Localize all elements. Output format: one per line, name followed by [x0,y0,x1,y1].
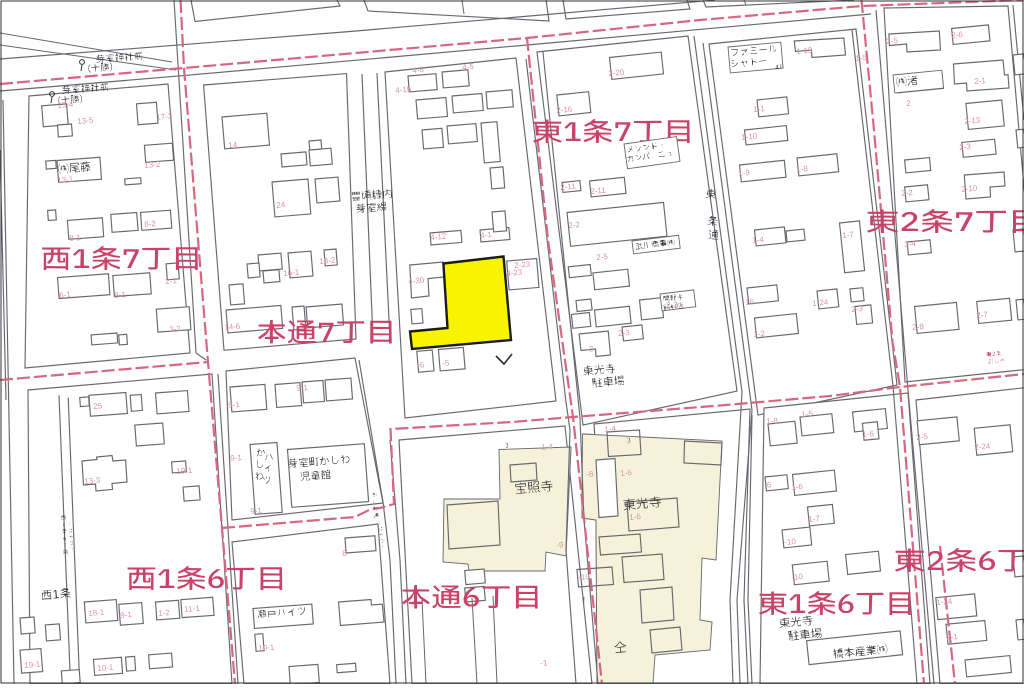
svg-text:-6: -6 [417,360,425,370]
svg-text:1-4: 1-4 [541,442,554,452]
svg-text:8-2: 8-2 [144,219,157,229]
svg-text:1-8: 1-8 [766,416,779,426]
svg-text:4-15: 4-15 [395,85,412,95]
svg-text:13-5: 13-5 [77,116,94,126]
svg-text:-10: -10 [791,572,804,582]
svg-text:16: 16 [745,297,755,307]
svg-text:16-1: 16-1 [283,268,300,278]
svg-text:24: 24 [276,200,286,210]
svg-text:18-1: 18-1 [88,608,105,618]
svg-text:10-1: 10-1 [258,643,275,653]
svg-text:13-1: 13-1 [57,175,74,185]
svg-text:1-2: 1-2 [753,329,766,339]
svg-text:2-3: 2-3 [666,300,679,310]
svg-text:1-7: 1-7 [808,514,821,524]
svg-text:1-10: 1-10 [741,132,758,142]
svg-text:2-2: 2-2 [568,220,581,230]
svg-text:1-8: 1-8 [796,164,809,174]
svg-text:25: 25 [93,401,103,411]
svg-text:1-5: 1-5 [855,53,868,63]
svg-text:1-6: 1-6 [862,429,875,439]
svg-text:2-8: 2-8 [912,322,925,332]
svg-text:1-5: 1-5 [801,409,814,419]
svg-text:2-3: 2-3 [959,142,972,152]
svg-text:2-6: 2-6 [951,30,964,40]
svg-text:2-5: 2-5 [886,36,899,46]
svg-text:3-4: 3-4 [904,239,917,249]
svg-text:1-6: 1-6 [620,468,633,478]
svg-text:4-12: 4-12 [430,232,447,242]
svg-text:13-4: 13-4 [57,100,74,110]
svg-text:8-1: 8-1 [114,290,127,300]
svg-text:19-1: 19-1 [176,466,193,476]
svg-text:4-30: 4-30 [408,276,425,286]
svg-text:2-5: 2-5 [916,432,929,442]
svg-text:18-2: 18-2 [319,256,336,266]
svg-text:2-23: 2-23 [514,260,531,270]
svg-text:1-24: 1-24 [936,597,953,607]
svg-text:-9: -9 [556,540,564,550]
svg-text:3-2: 3-2 [169,324,182,334]
svg-text:9-1: 9-1 [230,453,243,463]
svg-text:2-1: 2-1 [974,76,987,86]
svg-text:11-1: 11-1 [184,604,201,614]
svg-text:1-4: 1-4 [604,424,617,434]
svg-text:2-24: 2-24 [974,442,991,452]
svg-text:1-2: 1-2 [158,608,171,618]
svg-text:-8: -8 [586,469,594,479]
svg-text:2-10: 2-10 [961,184,978,194]
svg-text:-5: -5 [442,358,450,368]
svg-text:2-3: 2-3 [851,304,864,314]
svg-text:2-16: 2-16 [556,105,573,115]
svg-text:1-1: 1-1 [753,104,766,114]
svg-text:4-1: 4-1 [480,230,493,240]
svg-text:2-7: 2-7 [976,310,989,320]
svg-text:4-5: 4-5 [462,62,475,72]
svg-text:2-1: 2-1 [946,632,959,642]
svg-text:2-11: 2-11 [590,186,607,196]
svg-text:9-1: 9-1 [228,400,241,410]
svg-text:2-5: 2-5 [596,252,609,262]
svg-text:17-3: 17-3 [156,112,173,122]
svg-text:2-11: 2-11 [560,182,577,192]
svg-text:-1: -1 [540,658,548,668]
svg-text:1-9: 1-9 [738,168,751,178]
svg-text:13-3: 13-3 [84,476,101,486]
svg-text:2-13: 2-13 [964,116,981,126]
svg-text:4-6: 4-6 [412,65,425,75]
svg-text:1-7: 1-7 [842,230,855,240]
svg-text:9-1: 9-1 [296,383,309,393]
svg-text:2-20: 2-20 [608,68,625,78]
svg-text:1-13: 1-13 [796,46,813,56]
svg-text:1-4: 1-4 [752,235,765,245]
svg-text:-10: -10 [578,572,591,582]
svg-text:9-1: 9-1 [250,506,263,516]
svg-text:9-1: 9-1 [120,610,133,620]
svg-text:1-6: 1-6 [629,512,642,522]
svg-text:-3: -3 [586,344,594,354]
svg-text:10-1: 10-1 [97,663,114,673]
svg-text:14: 14 [228,140,238,150]
svg-text:1-24: 1-24 [812,298,829,308]
svg-text:13-2: 13-2 [144,160,161,170]
svg-text:6-1: 6-1 [59,290,72,300]
svg-text:1-6: 1-6 [791,482,804,492]
svg-text:8-1: 8-1 [69,233,82,243]
svg-text:14-6: 14-6 [224,322,241,332]
svg-text:2-2: 2-2 [901,188,914,198]
svg-text:2-3: 2-3 [618,328,631,338]
svg-text:19-1: 19-1 [24,660,41,670]
svg-text:2-1: 2-1 [165,276,178,286]
svg-text:-6: -6 [764,480,772,490]
svg-text:-10: -10 [784,537,797,547]
